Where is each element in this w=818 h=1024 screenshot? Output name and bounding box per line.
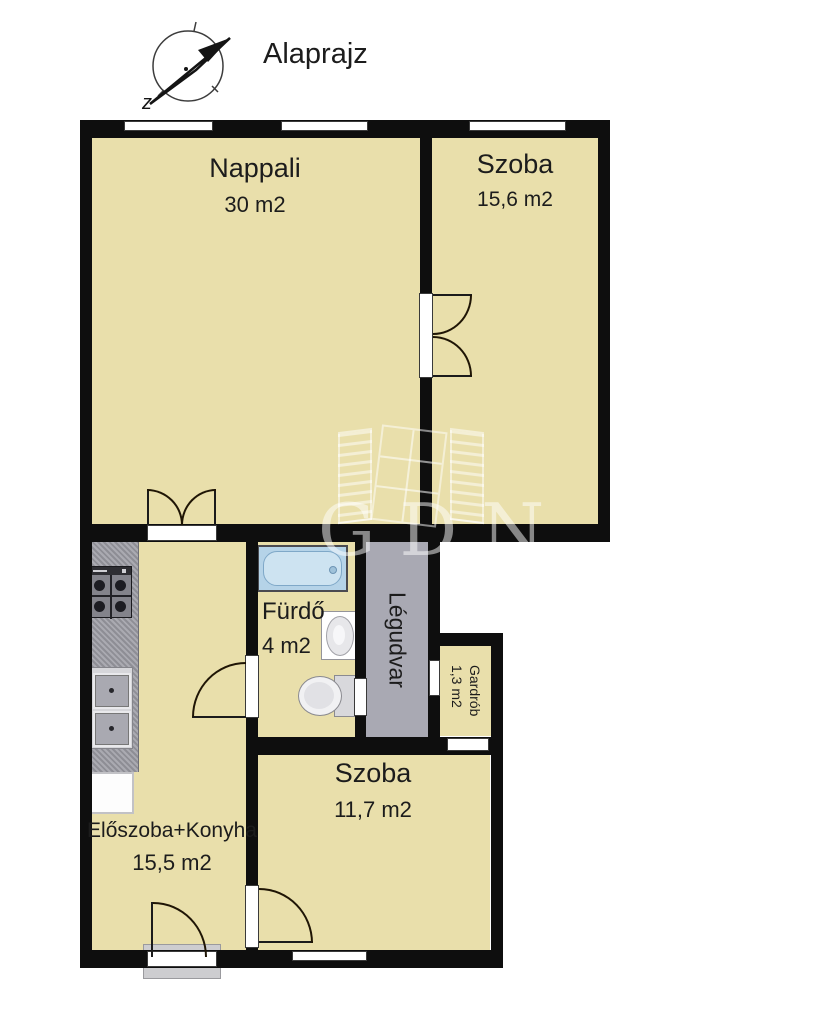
stove-icon [88,566,132,618]
compass-icon: z [140,16,236,112]
label-szoba-top: Szoba 15,6 m2 [432,148,598,213]
label-furdo: Fürdő 4 m2 [262,597,352,660]
room-area: 15,6 m2 [432,187,598,213]
fridge-icon [90,772,134,814]
room-area: 1,3 m2 [448,665,466,716]
room-area: 4 m2 [262,632,352,660]
compass-label: z [141,92,152,112]
wall [598,120,610,542]
window [281,121,368,131]
floorplan-page: z Alaprajz [0,0,818,1024]
window [292,951,367,961]
room-area: 15,5 m2 [86,849,258,877]
label-gardrob: Gardrób 1,3 m2 [440,646,492,736]
label-legudvar: Légudvar [366,547,428,732]
room-area: 11,7 m2 [258,796,488,824]
door-gap-eloszoba-szoba [245,885,259,948]
room-name: Gardrób [466,665,484,716]
door-gap-eloszoba-furdo [245,655,259,718]
wall [491,633,503,968]
room-name: Előszoba+Konyha [86,818,258,844]
wall [428,542,440,751]
room-name: Fürdő [262,597,352,627]
window [469,121,566,131]
room-name: Nappali [155,152,355,186]
door-gap-nappali-eloszoba [147,525,217,541]
door-gap-gardrob [447,738,489,751]
window [124,121,213,131]
room-name: Szoba [258,757,488,791]
bathtub-icon [257,545,348,592]
toilet-icon [298,673,358,719]
room-name: Szoba [432,148,598,182]
page-title: Alaprajz [263,38,368,71]
opening-legudvar-gardrob [429,660,440,696]
room-area: 30 m2 [155,191,355,219]
label-szoba-bottom: Szoba 11,7 m2 [258,757,488,823]
door-gap-nappali-szoba [419,293,433,378]
label-nappali: Nappali 30 m2 [155,152,355,218]
kitchen-sink-icon [87,667,133,749]
label-eloszoba: Előszoba+Konyha 15,5 m2 [86,818,258,877]
room-name: Légudvar [384,592,411,688]
